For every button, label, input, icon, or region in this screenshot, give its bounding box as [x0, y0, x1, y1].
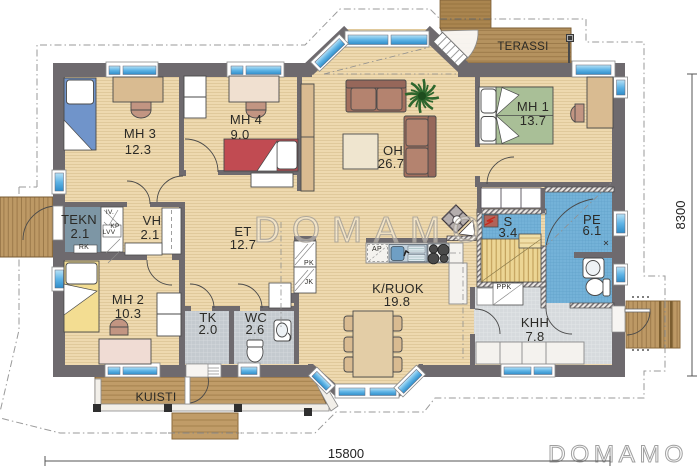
svg-text:IV.: IV. [106, 209, 114, 216]
svg-text:MH 3: MH 3 [124, 126, 156, 141]
svg-text:DOMAMO: DOMAMO [254, 209, 492, 250]
svg-text:MH 2: MH 2 [112, 292, 144, 307]
svg-text:PK: PK [304, 260, 314, 267]
svg-text:26.7: 26.7 [378, 156, 405, 171]
svg-text:MH 4: MH 4 [230, 112, 262, 127]
svg-text:2.6: 2.6 [246, 322, 265, 337]
svg-text:7.8: 7.8 [526, 329, 545, 344]
svg-text:13.7: 13.7 [520, 113, 547, 128]
svg-text:15800: 15800 [328, 446, 364, 461]
svg-text:LVV: LVV [103, 229, 116, 236]
svg-text:8300: 8300 [673, 201, 688, 230]
svg-text:2.1: 2.1 [141, 227, 160, 242]
svg-text:VH: VH [143, 213, 162, 228]
svg-text:PPK: PPK [497, 284, 512, 291]
svg-text:2.1: 2.1 [71, 226, 90, 241]
svg-text:12.7: 12.7 [230, 237, 257, 252]
svg-text:TERASSI: TERASSI [497, 41, 548, 53]
svg-text:10.3: 10.3 [115, 306, 142, 321]
svg-text:KUISTI: KUISTI [135, 390, 176, 404]
svg-text:19.8: 19.8 [384, 294, 411, 309]
svg-text:KHH: KHH [521, 315, 549, 330]
svg-text:6.1: 6.1 [583, 223, 602, 238]
svg-text:3.4: 3.4 [499, 225, 518, 240]
svg-text:RK: RK [79, 244, 89, 251]
svg-text:JK: JK [305, 279, 314, 286]
svg-text:TEKN: TEKN [61, 212, 97, 227]
svg-text:DOMAMO: DOMAMO [548, 441, 688, 468]
svg-text:MH 1: MH 1 [517, 99, 549, 114]
svg-text:9.0: 9.0 [231, 127, 250, 142]
svg-text:2.0: 2.0 [199, 322, 218, 337]
svg-text:12.3: 12.3 [125, 142, 152, 157]
